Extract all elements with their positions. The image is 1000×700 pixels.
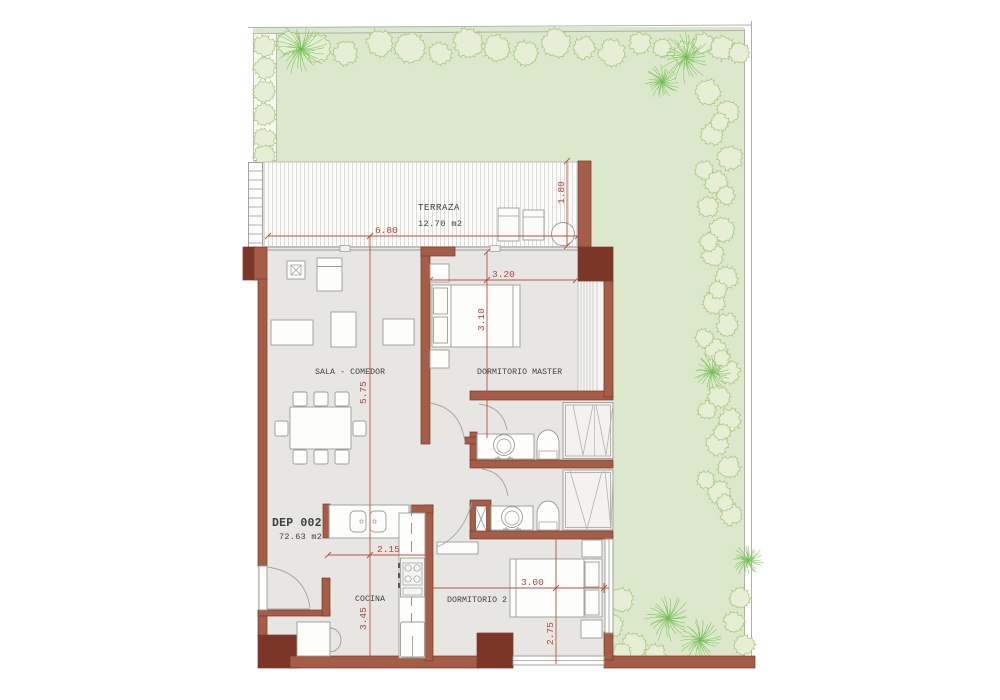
svg-text:SALA - COMEDOR: SALA - COMEDOR — [315, 368, 385, 377]
svg-text:TERRAZA: TERRAZA — [418, 203, 460, 213]
svg-text:DEP 002: DEP 002 — [272, 517, 322, 530]
svg-text:5.75: 5.75 — [358, 381, 369, 404]
svg-text:COCINA: COCINA — [355, 595, 385, 604]
svg-text:3.45: 3.45 — [358, 607, 369, 630]
svg-text:DORMITORIO 2: DORMITORIO 2 — [447, 596, 507, 605]
svg-text:3.20: 3.20 — [492, 269, 515, 280]
svg-text:3.00: 3.00 — [521, 577, 544, 588]
svg-text:72.63 m2: 72.63 m2 — [279, 532, 322, 542]
svg-text:2.75: 2.75 — [545, 622, 556, 645]
svg-text:3.10: 3.10 — [476, 308, 487, 331]
svg-text:2.15: 2.15 — [377, 544, 400, 555]
svg-text:12.70 m2: 12.70 m2 — [418, 219, 462, 229]
svg-text:1.80: 1.80 — [556, 181, 567, 204]
svg-text:6.80: 6.80 — [375, 225, 398, 236]
svg-text:DORMITORIO MASTER: DORMITORIO MASTER — [477, 368, 562, 377]
